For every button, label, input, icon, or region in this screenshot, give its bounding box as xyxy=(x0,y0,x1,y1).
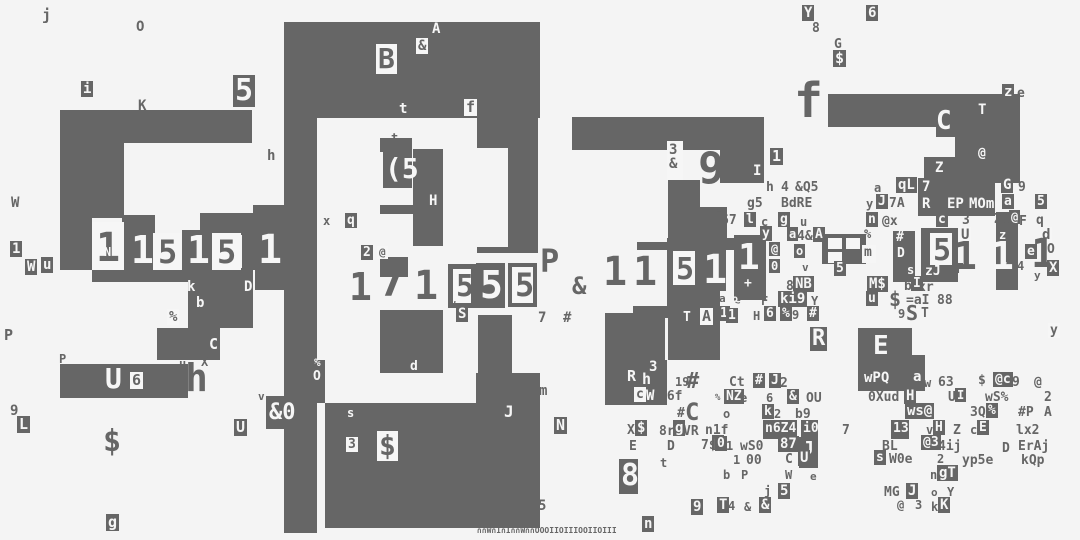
glyph: k xyxy=(762,404,774,419)
glyph: S xyxy=(456,306,468,322)
glyph: @ xyxy=(978,147,986,160)
glyph: j xyxy=(42,8,51,23)
glyph: ErAj xyxy=(1018,440,1049,453)
glyph: c xyxy=(1001,259,1008,270)
glyph: S xyxy=(906,303,918,323)
block xyxy=(60,143,124,218)
glyph: R xyxy=(627,369,636,384)
glyph: m xyxy=(864,246,872,259)
glyph: 1 xyxy=(633,252,657,292)
glyph: v xyxy=(802,262,809,273)
glyph: 4 xyxy=(1017,260,1024,272)
block xyxy=(380,205,413,214)
glyph: 5 xyxy=(933,236,951,266)
glyph: J xyxy=(906,483,918,499)
block xyxy=(60,110,252,143)
glyph: u xyxy=(866,291,878,306)
glyph: 4 xyxy=(781,181,789,194)
block xyxy=(668,290,720,360)
glyph: 5 xyxy=(158,236,177,268)
glyph: c xyxy=(634,387,646,402)
glyph: D xyxy=(897,247,905,260)
glyph: 1 xyxy=(10,241,22,257)
glyph: Z xyxy=(935,161,943,175)
block xyxy=(60,364,188,398)
glyph: W xyxy=(11,196,19,210)
glyph: 6 xyxy=(866,5,878,21)
glyph: 9 xyxy=(898,308,905,320)
glyph: wS0 xyxy=(740,440,763,453)
glyph: 1 xyxy=(131,231,154,269)
block xyxy=(846,238,860,249)
glyph: T xyxy=(681,310,693,325)
block xyxy=(508,148,538,247)
glyph: MOm xyxy=(969,197,994,211)
glyph: qL xyxy=(896,177,917,193)
glyph: C xyxy=(936,108,952,134)
glyph: y xyxy=(1048,323,1060,338)
glyph: % xyxy=(986,403,998,418)
block xyxy=(955,125,1020,158)
block xyxy=(284,118,317,533)
glyph: e xyxy=(810,471,817,482)
glyph: 00 xyxy=(746,454,762,467)
glyph: t xyxy=(660,457,667,469)
glyph: g xyxy=(106,514,119,531)
glyph: o xyxy=(732,295,738,305)
glyph: b9 xyxy=(795,408,811,421)
glyph: O xyxy=(136,20,144,34)
glyph: & xyxy=(572,274,586,298)
glyph: 5 xyxy=(515,269,534,301)
glyph: $ xyxy=(889,289,901,309)
glyph: W xyxy=(25,259,37,275)
glyph: 3 xyxy=(915,499,922,511)
glyph: 8 xyxy=(621,461,639,491)
glyph: 5 xyxy=(778,483,790,499)
glyph: $ xyxy=(978,374,986,387)
glyph: 5 xyxy=(834,261,846,276)
glyph: % xyxy=(167,309,179,325)
glyph: h xyxy=(185,359,208,397)
glyph: E xyxy=(977,420,989,435)
glyph: A xyxy=(1044,406,1052,419)
glyph: C xyxy=(209,337,218,352)
glyph: t xyxy=(391,132,398,144)
glyph: Ct xyxy=(729,376,745,389)
glyph: R xyxy=(810,327,827,351)
glyph: 7A xyxy=(889,197,905,210)
glyph: d xyxy=(410,360,418,373)
glyph: 1 xyxy=(603,252,627,292)
glyph: l xyxy=(744,212,756,227)
glyph: k xyxy=(187,280,195,294)
glyph: # xyxy=(753,373,765,388)
glyph: U xyxy=(798,450,810,466)
glyph: o xyxy=(931,487,938,498)
glyph: K xyxy=(938,497,950,513)
block xyxy=(242,230,255,270)
glyph: H xyxy=(933,420,945,435)
glyph: s xyxy=(347,407,354,419)
glyph: 2 xyxy=(361,245,373,260)
glyph: L xyxy=(17,416,30,433)
glyph: @c xyxy=(993,372,1013,387)
glyph: @ xyxy=(897,499,904,511)
glyph: X xyxy=(627,424,635,437)
glyph: w xyxy=(449,298,456,309)
glyph: w xyxy=(924,377,931,389)
glyph: 6 xyxy=(766,392,773,404)
glyph: zJ xyxy=(925,265,941,278)
glyph: E xyxy=(629,440,637,453)
glyph: v xyxy=(258,391,265,402)
glyph: NB xyxy=(793,276,814,292)
glyph: O xyxy=(311,369,323,384)
glyph: z xyxy=(1002,84,1014,100)
glyph: Y xyxy=(802,5,814,21)
glyph: ∩∩W∩I∩I∩∩W∩∩OOOIIOIIIOOIIOIII xyxy=(477,527,617,535)
glyph: BdRE xyxy=(781,197,812,210)
glyph: C xyxy=(685,400,699,424)
glyph: 67 xyxy=(721,214,737,227)
glyph: N xyxy=(104,246,111,258)
glyph: & xyxy=(787,389,799,404)
glyph: I xyxy=(955,388,966,402)
glyph: & xyxy=(759,497,771,513)
glyph: K xyxy=(138,99,146,113)
glyph: P xyxy=(59,353,66,365)
glyph: 2 xyxy=(774,408,781,420)
glyph: a xyxy=(911,369,923,385)
glyph: gT xyxy=(937,465,958,481)
glyph: (5 xyxy=(385,155,419,183)
glyph: o xyxy=(794,244,805,258)
glyph: &Q5 xyxy=(795,181,818,194)
glyph: 2 xyxy=(1044,391,1052,404)
glyph: T xyxy=(978,103,986,117)
glyph: H xyxy=(429,194,437,208)
glyph: 3 xyxy=(962,214,970,227)
glyph: P xyxy=(741,469,748,481)
glyph: #P xyxy=(1018,406,1034,419)
block xyxy=(828,94,1020,127)
glyph: x xyxy=(323,215,330,227)
glyph: 13 xyxy=(893,422,909,435)
glyph: @x xyxy=(882,215,898,228)
glyph: O xyxy=(1047,243,1055,256)
glyph: % xyxy=(780,306,792,321)
glyph: $ xyxy=(635,420,647,436)
glyph: 1 xyxy=(414,266,438,306)
glyph: H xyxy=(904,388,916,404)
block xyxy=(476,373,540,403)
glyph: # xyxy=(563,311,571,325)
glyph: g5 xyxy=(747,197,763,210)
glyph: 6 xyxy=(130,372,143,389)
glyph: 4 xyxy=(728,500,735,512)
glyph: G xyxy=(1001,177,1013,193)
glyph: OU xyxy=(806,392,822,405)
glyph: m xyxy=(539,384,547,398)
glyph: 87 xyxy=(778,436,799,452)
glyph: # xyxy=(677,407,685,420)
glyph: a xyxy=(719,293,726,304)
glyph: 9 xyxy=(698,147,725,191)
glyph: wPQ xyxy=(864,371,889,385)
glyph: X xyxy=(1047,260,1059,276)
glyph: f6f xyxy=(659,390,682,403)
glyph: 7 xyxy=(922,180,930,194)
glyph: # xyxy=(896,231,904,244)
glyph: n xyxy=(642,516,654,532)
glyph: T xyxy=(921,307,929,320)
glyph: $ xyxy=(377,431,398,461)
glyph: @ xyxy=(1034,376,1042,389)
glyph: 5 xyxy=(1035,194,1047,209)
glyph: I xyxy=(753,164,761,178)
glyph: W xyxy=(785,469,792,481)
glyph: & xyxy=(744,501,751,513)
glyph: $ xyxy=(833,50,846,67)
glyph: 0Xud xyxy=(868,391,899,404)
glyph: 1 xyxy=(187,231,210,269)
glyph: H xyxy=(753,310,760,322)
glyph: o xyxy=(723,408,730,420)
glyph: % xyxy=(864,228,871,240)
glyph: n xyxy=(866,212,878,227)
glyph: b xyxy=(723,469,730,481)
block xyxy=(325,403,360,528)
glyph: a xyxy=(1002,194,1014,209)
block xyxy=(605,313,665,360)
glyph: 1 xyxy=(726,440,733,452)
glyph: 5 xyxy=(233,75,255,107)
glyph: n6Z4 xyxy=(765,422,796,435)
glyph: h xyxy=(766,181,774,194)
glyph: 1 xyxy=(258,230,282,270)
glyph: 0 xyxy=(769,259,780,273)
block xyxy=(360,403,540,528)
glyph: 63 xyxy=(938,376,954,389)
glyph: t xyxy=(399,102,407,116)
glyph: 5 xyxy=(480,266,503,304)
block xyxy=(478,315,512,373)
glyph: s xyxy=(874,450,886,465)
glyph: f xyxy=(464,99,477,116)
block xyxy=(477,247,538,253)
glitch-art-canvas: jOi5KhW1WuP9L$g1xN15151kbD%CA&Btft(5Hxq2… xyxy=(0,0,1080,540)
glyph: A xyxy=(813,227,825,242)
glyph: VR xyxy=(683,425,699,438)
glyph: 2 xyxy=(937,453,944,465)
glyph: U xyxy=(105,365,122,393)
glyph: i0 xyxy=(803,422,819,435)
glyph: Ze xyxy=(994,213,1010,226)
glyph: P xyxy=(4,328,13,343)
glyph: 5 xyxy=(538,499,546,513)
glyph: Z xyxy=(953,424,961,437)
glyph: D xyxy=(244,280,252,294)
glyph: 1 xyxy=(349,268,372,306)
glyph: % xyxy=(715,394,720,403)
glyph: A xyxy=(700,308,713,325)
glyph: 3 xyxy=(346,437,358,452)
glyph: 9 xyxy=(691,499,703,515)
glyph: &0 xyxy=(269,402,296,424)
block xyxy=(828,238,842,249)
glyph: P xyxy=(540,245,559,277)
glyph: 7 xyxy=(379,260,406,304)
glyph: 6 xyxy=(764,306,776,321)
glyph: D xyxy=(667,440,675,453)
glyph: u xyxy=(41,257,53,273)
glyph: 7 xyxy=(538,311,546,325)
glyph: % xyxy=(314,357,321,368)
glyph: a xyxy=(874,182,881,194)
glyph: 9 xyxy=(1018,181,1026,194)
glyph: q xyxy=(1036,214,1044,227)
glyph: 1 xyxy=(703,250,727,290)
glyph: x xyxy=(124,232,130,242)
glyph: J xyxy=(504,404,514,420)
glyph: D xyxy=(1002,442,1010,455)
glyph: 1 xyxy=(954,237,977,275)
glyph: 5 xyxy=(217,236,236,268)
glyph: 5 xyxy=(456,272,474,302)
glyph: 7 xyxy=(842,424,850,437)
glyph: U xyxy=(234,419,247,436)
glyph: EP xyxy=(947,197,964,211)
glyph: F xyxy=(1019,215,1027,228)
glyph: B xyxy=(376,44,397,74)
glyph: W xyxy=(646,389,654,403)
glyph: q xyxy=(345,213,357,228)
glyph: @ xyxy=(769,242,780,256)
glyph: s xyxy=(907,264,914,276)
glyph: 1 xyxy=(733,454,740,466)
glyph: r xyxy=(675,183,683,196)
glyph: 4& xyxy=(797,230,813,243)
block xyxy=(60,218,92,270)
glyph: e xyxy=(740,392,747,404)
glyph: A xyxy=(432,22,440,36)
glyph: h xyxy=(642,372,651,387)
glyph: # xyxy=(807,306,819,321)
glyph: y xyxy=(1034,270,1041,281)
block xyxy=(477,100,538,148)
glyph: 88 xyxy=(937,294,953,307)
glyph: 1 xyxy=(738,240,760,276)
glyph: u xyxy=(800,216,807,228)
glyph: lx2 xyxy=(1016,424,1039,437)
glyph: y xyxy=(760,226,772,241)
glyph: 3Q xyxy=(970,406,986,419)
glyph: 3 & xyxy=(669,143,677,171)
glyph: # xyxy=(686,371,699,393)
glyph: yp5e xyxy=(962,454,993,467)
glyph: j xyxy=(764,485,771,497)
glyph: + xyxy=(744,277,752,290)
glyph: 9 xyxy=(1012,376,1020,389)
glyph: y xyxy=(866,198,873,210)
glyph: $ xyxy=(103,427,121,457)
glyph: b xyxy=(196,296,204,310)
glyph: & xyxy=(416,38,428,54)
glyph: i xyxy=(81,81,93,97)
glyph: 9 xyxy=(792,309,799,321)
glyph: M$ xyxy=(867,276,888,292)
glyph: ki9 xyxy=(778,291,807,307)
glyph: N xyxy=(554,417,567,434)
glyph: R xyxy=(922,197,930,211)
glyph: E xyxy=(873,333,889,359)
glyph: g xyxy=(778,212,790,227)
glyph: kQp xyxy=(1021,454,1044,467)
glyph: h xyxy=(267,149,275,163)
glyph: 5 xyxy=(676,255,694,285)
glyph: c xyxy=(936,212,948,227)
glyph: C xyxy=(785,453,793,466)
glyph: 1 xyxy=(726,308,738,323)
glyph: J xyxy=(876,194,888,209)
glyph: f xyxy=(794,77,823,125)
glyph: W0e xyxy=(889,453,912,466)
glyph: 8 xyxy=(812,22,820,35)
glyph: 1 xyxy=(770,148,783,165)
glyph: ws@ xyxy=(905,403,934,419)
glyph: e xyxy=(1017,87,1025,100)
